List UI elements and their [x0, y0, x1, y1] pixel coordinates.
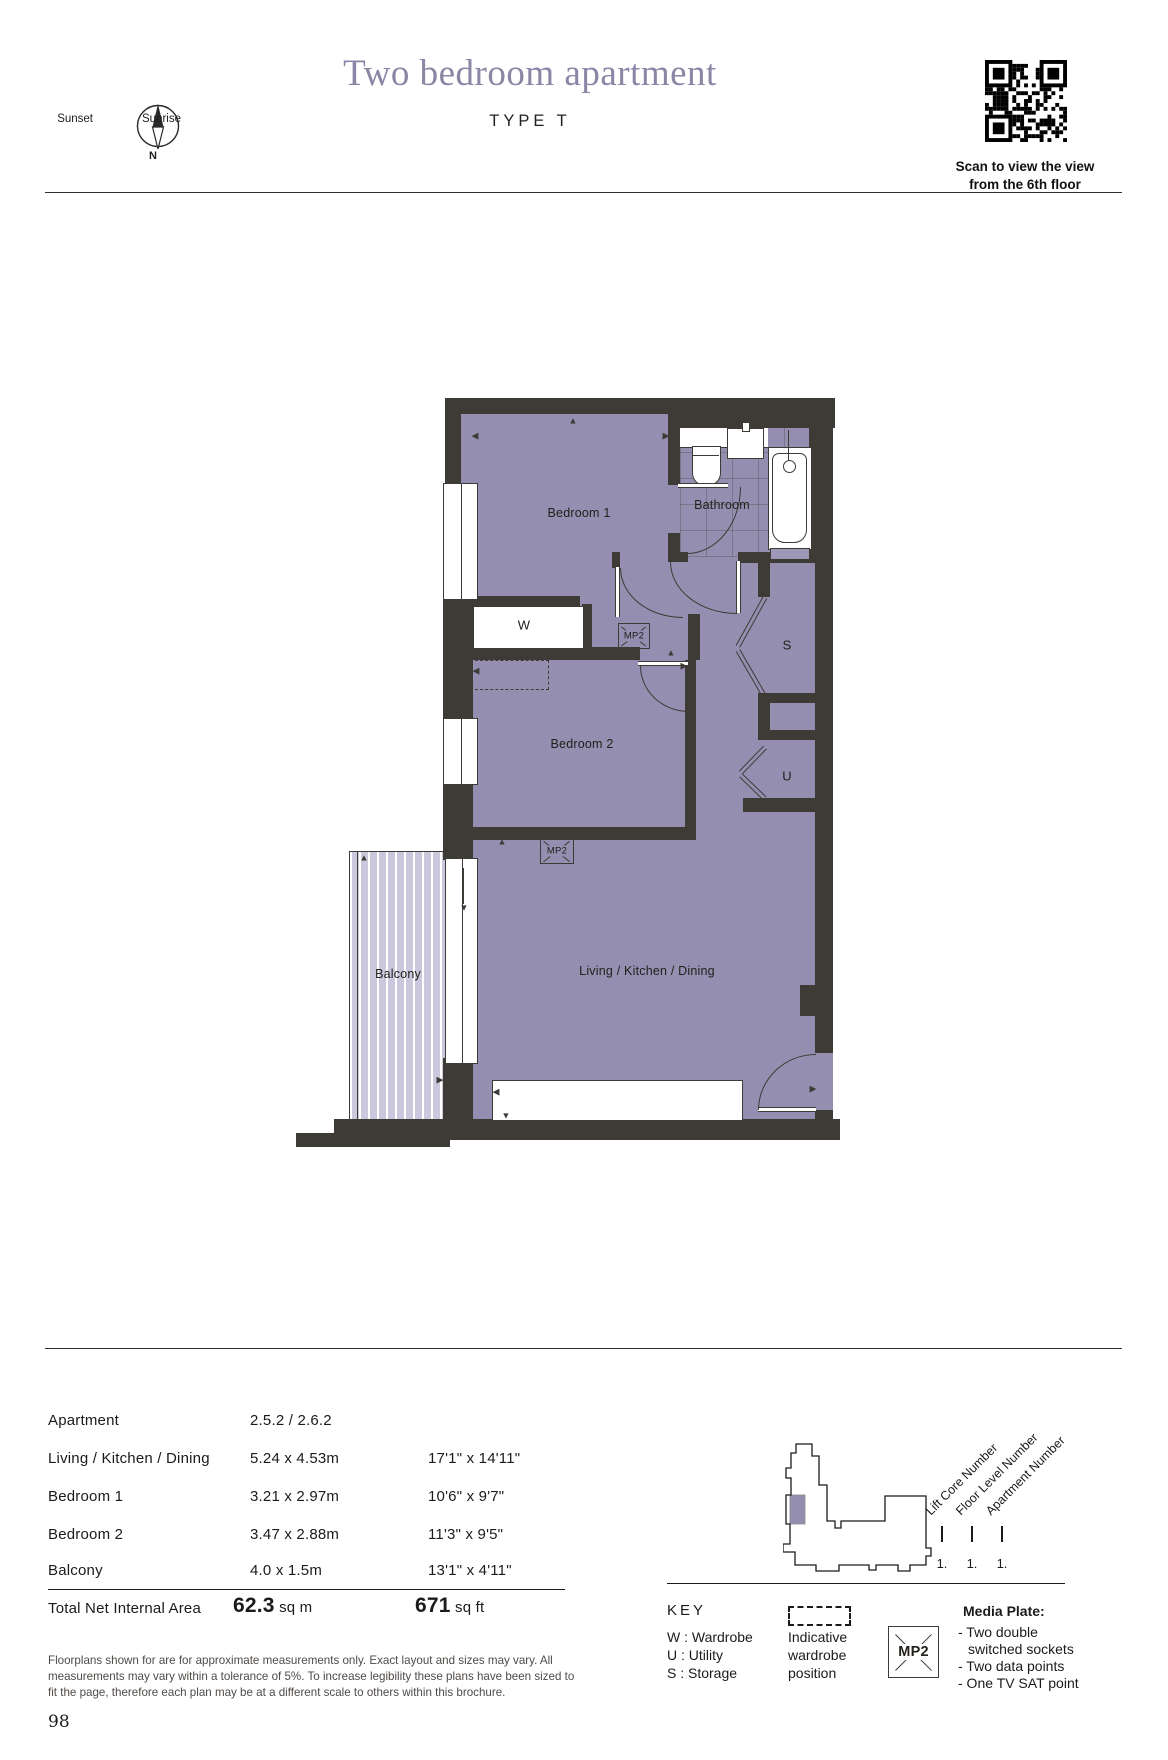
row-label: Apartment: [48, 1412, 119, 1429]
row-label: Bedroom 2: [48, 1526, 123, 1543]
wall: [668, 552, 688, 562]
disclaimer-line2: measurements may vary within a tolerance…: [48, 1669, 574, 1685]
arrow-icon: ◀: [473, 667, 480, 676]
balcony-area: [349, 851, 447, 1121]
balcony-slider-window: [445, 858, 478, 1064]
locator-tick: [941, 1526, 943, 1542]
arrow-icon: ▲: [569, 417, 578, 426]
wall: [668, 414, 680, 485]
row-imperial: 11'3" x 9'5": [428, 1526, 503, 1543]
arrow-icon: ◀: [493, 1088, 500, 1097]
locator-value: 1.: [933, 1556, 951, 1571]
row-label: Living / Kitchen / Dining: [48, 1450, 210, 1467]
arrow-icon: ◀: [472, 432, 479, 441]
arrow-icon: ▲: [667, 649, 676, 658]
balcony-frame-line: [357, 852, 358, 1120]
room-label-bedroom2: Bedroom 2: [551, 737, 614, 751]
arrow-icon: ▼: [502, 1112, 511, 1121]
bathroom-sink: [727, 428, 764, 459]
bathtub-tap-icon: [783, 460, 796, 473]
media-plate-line-2: switched sockets: [968, 1641, 1074, 1657]
disclaimer-line3: fit the page, therefore each plan may be…: [48, 1685, 574, 1701]
arrow-icon: ▼: [568, 596, 577, 605]
wall: [443, 1119, 840, 1140]
brochure-page: N Sunset Sunrise Two bedroom apartment T…: [0, 0, 1168, 1760]
wall: [758, 563, 770, 597]
building-locator-outline: [783, 1441, 935, 1575]
floor-plan: ▼ MP2: [0, 0, 1168, 1200]
total-imperial-unit: sq ft: [455, 1599, 484, 1616]
sink-tap-icon: [742, 422, 750, 432]
window-frame: [461, 484, 462, 599]
row-metric: 2.5.2 / 2.6.2: [250, 1412, 332, 1429]
room-label-living: Living / Kitchen / Dining: [579, 964, 715, 978]
arrow-icon: ▲: [360, 854, 369, 863]
key-media-plate-marker: MP2: [888, 1626, 939, 1678]
total-imperial-value: 671: [415, 1594, 451, 1617]
row-metric: 3.21 x 2.97m: [250, 1488, 339, 1505]
toilet-seat-line: [692, 455, 719, 456]
window-bedroom1: [443, 483, 478, 600]
row-metric: 5.24 x 4.53m: [250, 1450, 339, 1467]
row-label: Bedroom 1: [48, 1488, 123, 1505]
media-plate-line-1: - Two double: [958, 1624, 1038, 1640]
wall: [445, 398, 668, 414]
media-plate-marker: MP2: [540, 838, 574, 864]
disclaimer: Floorplans shown for are for approximate…: [48, 1653, 574, 1701]
wall: [668, 398, 835, 428]
down-arrow-icon: ▼: [460, 904, 469, 913]
room-label-storage: S: [783, 638, 792, 653]
kitchen-counter: [492, 1080, 743, 1121]
window-frame: [461, 719, 462, 784]
window-bedroom2: [443, 718, 478, 785]
wall-notch: [296, 1119, 334, 1133]
arrow-icon: ▼: [670, 827, 679, 836]
wall: [443, 783, 473, 860]
wall: [445, 398, 461, 490]
wall: [815, 1110, 833, 1140]
row-imperial: 13'1" x 4'11": [428, 1562, 512, 1579]
arrow-icon: ▶: [681, 662, 688, 671]
highlighted-unit: [790, 1495, 805, 1524]
key-divider: [667, 1583, 1065, 1584]
key-wardrobe-note-3: position: [788, 1665, 836, 1681]
arrow-icon: ▶: [810, 1085, 817, 1094]
wall: [461, 827, 696, 840]
disclaimer-line1: Floorplans shown for are for approximate…: [48, 1653, 574, 1669]
row-imperial: 17'1" x 14'11": [428, 1450, 520, 1467]
room-label-utility: U: [782, 769, 792, 784]
row-metric: 3.47 x 2.88m: [250, 1526, 339, 1543]
door-leaf: [615, 567, 620, 617]
total-divider: [48, 1589, 565, 1590]
section-divider: [45, 1348, 1122, 1349]
arrow-icon: ▶: [663, 432, 670, 441]
key-heading: KEY: [667, 1602, 706, 1619]
wall: [758, 730, 817, 740]
room-label-wardrobe: W: [518, 618, 530, 633]
page-number: 98: [48, 1712, 70, 1732]
total-imperial: 671 sq ft: [415, 1594, 484, 1618]
wall: [743, 798, 833, 812]
total-metric-unit: sq m: [279, 1599, 312, 1616]
indicative-wardrobe-outline: [470, 660, 549, 690]
media-plate-line-4: - One TV SAT point: [958, 1675, 1079, 1691]
total-metric: 62.3 sq m: [233, 1594, 312, 1618]
key-item-utility: U : Utility: [667, 1647, 723, 1663]
arrow-icon: ▲: [498, 838, 507, 847]
entrance-gap: [815, 1053, 833, 1110]
row-label: Balcony: [48, 1562, 103, 1579]
key-item-wardrobe: W : Wardrobe: [667, 1629, 753, 1645]
media-plate-label: MP2: [622, 631, 646, 642]
wall: [809, 428, 833, 560]
locator-value: 1.: [963, 1556, 981, 1571]
key-item-storage: S : Storage: [667, 1665, 737, 1681]
locator-tick: [1001, 1526, 1003, 1542]
slider-arrow-stem: [463, 868, 464, 904]
room-label-bedroom1: Bedroom 1: [548, 506, 611, 520]
toilet: [692, 446, 721, 486]
key-wardrobe-note-2: wardrobe: [788, 1647, 846, 1663]
row-imperial: 10'6" x 9'7": [428, 1488, 504, 1505]
media-plate-label: MP2: [545, 846, 569, 857]
total-metric-value: 62.3: [233, 1594, 275, 1617]
media-plate-title: Media Plate:: [963, 1603, 1045, 1619]
media-plate-marker: MP2: [618, 623, 650, 649]
room-label-balcony: Balcony: [375, 967, 421, 981]
total-label: Total Net Internal Area: [48, 1600, 201, 1617]
locator-tick: [971, 1526, 973, 1542]
arrow-icon: ▶: [437, 1076, 444, 1085]
locator-value: 1.: [993, 1556, 1011, 1571]
media-plate-line-3: - Two data points: [958, 1658, 1064, 1674]
bath-shelf: [770, 548, 810, 560]
wall: [800, 985, 833, 1016]
wall: [688, 614, 700, 660]
key-wardrobe-note-1: Indicative: [788, 1629, 847, 1645]
key-dashed-box: [788, 1606, 851, 1626]
room-label-bathroom: Bathroom: [694, 498, 750, 512]
wall: [612, 552, 620, 568]
key-media-plate-label: MP2: [896, 1644, 930, 1660]
bathtub-tap-stem: [788, 430, 789, 462]
row-metric: 4.0 x 1.5m: [250, 1562, 322, 1579]
